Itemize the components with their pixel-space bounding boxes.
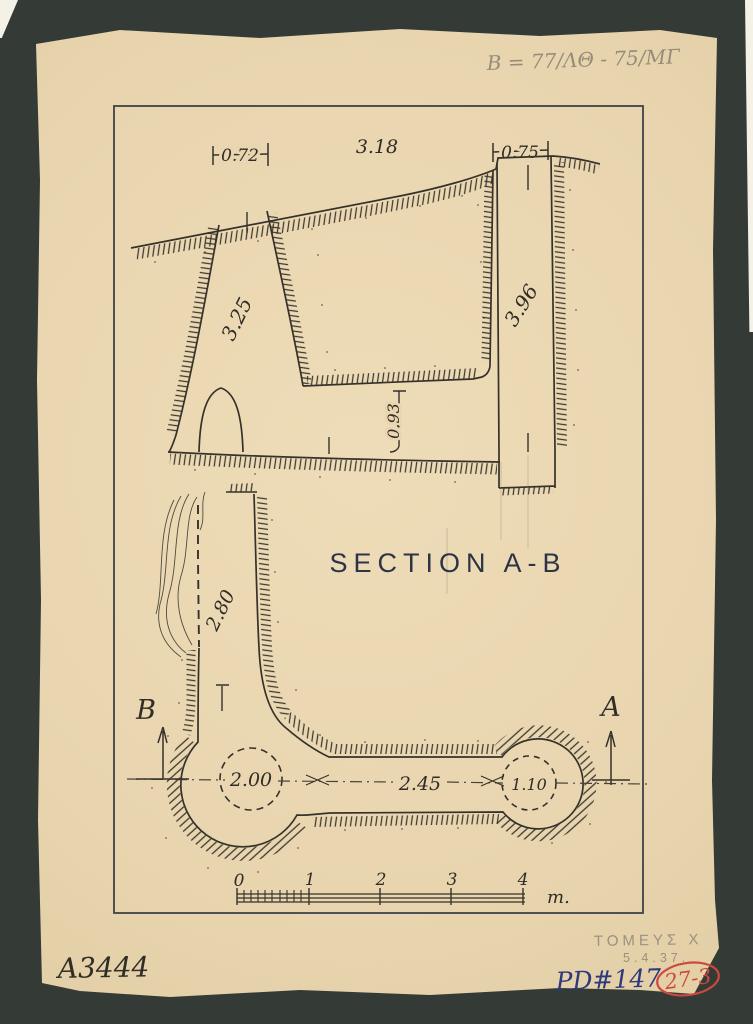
pencil-site-label: ΤΟΜΕΥΣ Χ — [594, 931, 703, 950]
archaeological-drawing: B = 77/ΛΘ - 75/ΜΓ 0.72 3.18 0.75 — [0, 0, 753, 1024]
dim-small-chamber-diameter: 1.10 — [511, 775, 547, 794]
catalog-number: A3444 — [55, 950, 150, 985]
dim-top-left: 0.72 — [221, 146, 259, 166]
dim-dromos-width: 2.80 — [201, 587, 240, 636]
ground-surface-line — [131, 156, 600, 248]
scale-tick-1: 1 — [305, 870, 316, 890]
rubble-squiggles — [156, 492, 205, 657]
marker-a-arrow — [592, 731, 630, 785]
scale-unit-label: m. — [547, 887, 570, 908]
plan-view: 2.80 2.00 2.45 1.10 B A — [127, 487, 647, 854]
scale-tick-0: 0 — [234, 871, 245, 891]
plan-centerline — [127, 775, 647, 786]
marker-a-label: A — [598, 692, 621, 723]
marker-b-label: B — [135, 695, 156, 726]
scale-tick-4: 4 — [517, 870, 529, 890]
dim-top-middle: 3.18 — [356, 136, 398, 158]
dim-corridor-length: 2.45 — [398, 773, 441, 795]
niche-arch — [199, 388, 243, 452]
scale-tick-2: 2 — [375, 870, 387, 890]
pencil-inscription-top-right: B = 77/ΛΘ - 75/ΜΓ — [485, 44, 681, 75]
dim-depth-right: 3.96 — [499, 280, 543, 331]
chamber-left-wall — [267, 211, 303, 386]
scanned-drawing-photo: B = 77/ΛΘ - 75/ΜΓ 0.72 3.18 0.75 — [0, 0, 753, 1024]
dim-depth-left: 3.25 — [216, 294, 257, 345]
scale-tick-3: 3 — [447, 870, 458, 890]
dromos-dashed-wall — [198, 505, 199, 647]
dim-chamber-diameter: 2.00 — [229, 769, 272, 791]
scale-bar-sub-ticks — [244, 890, 301, 902]
dim-top-right: 0.75 — [501, 143, 539, 163]
dim-floor-gap: 0.93 — [384, 403, 403, 439]
scale-bar: 0 1 2 3 4 m. — [234, 870, 570, 908]
section-marker-a: A — [592, 692, 630, 785]
section-title: SECTION A-B — [329, 548, 566, 578]
dromos-dim-tick — [216, 685, 229, 711]
inventory-number: PD#147 — [554, 963, 662, 996]
